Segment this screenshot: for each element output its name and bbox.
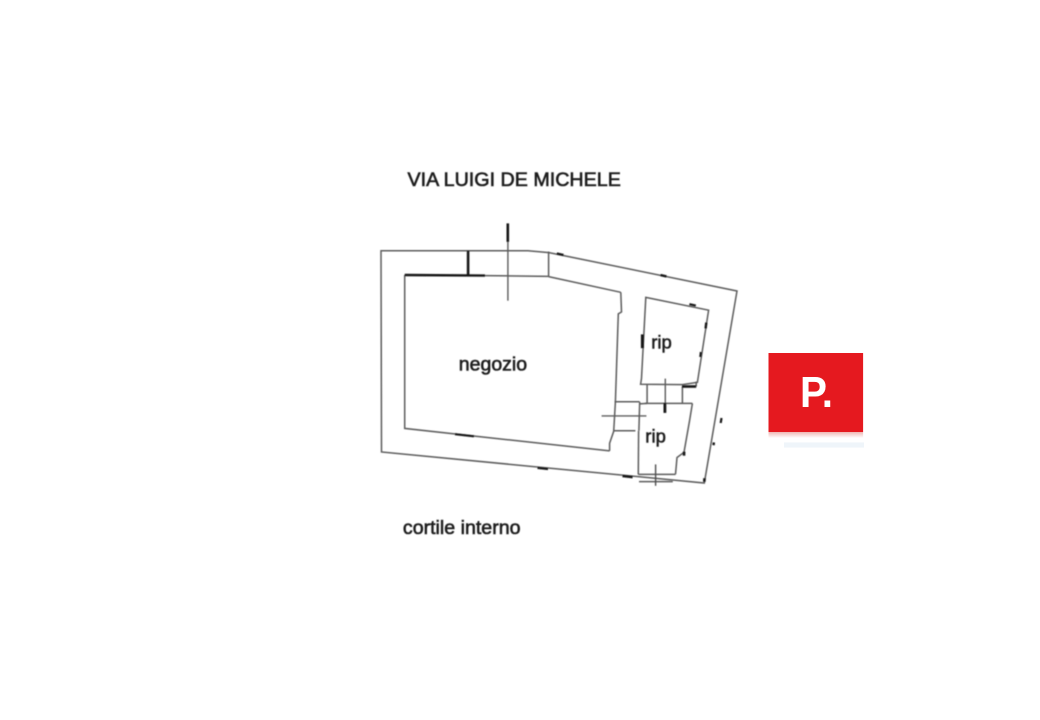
svg-text:rip: rip	[651, 331, 672, 352]
svg-text:VIA LUIGI DE MICHELE: VIA LUIGI DE MICHELE	[408, 169, 621, 191]
svg-text:rip: rip	[645, 426, 666, 447]
svg-text:cortile interno: cortile interno	[403, 517, 521, 539]
svg-text:P.: P.	[800, 368, 833, 417]
svg-text:negozio: negozio	[459, 354, 527, 376]
